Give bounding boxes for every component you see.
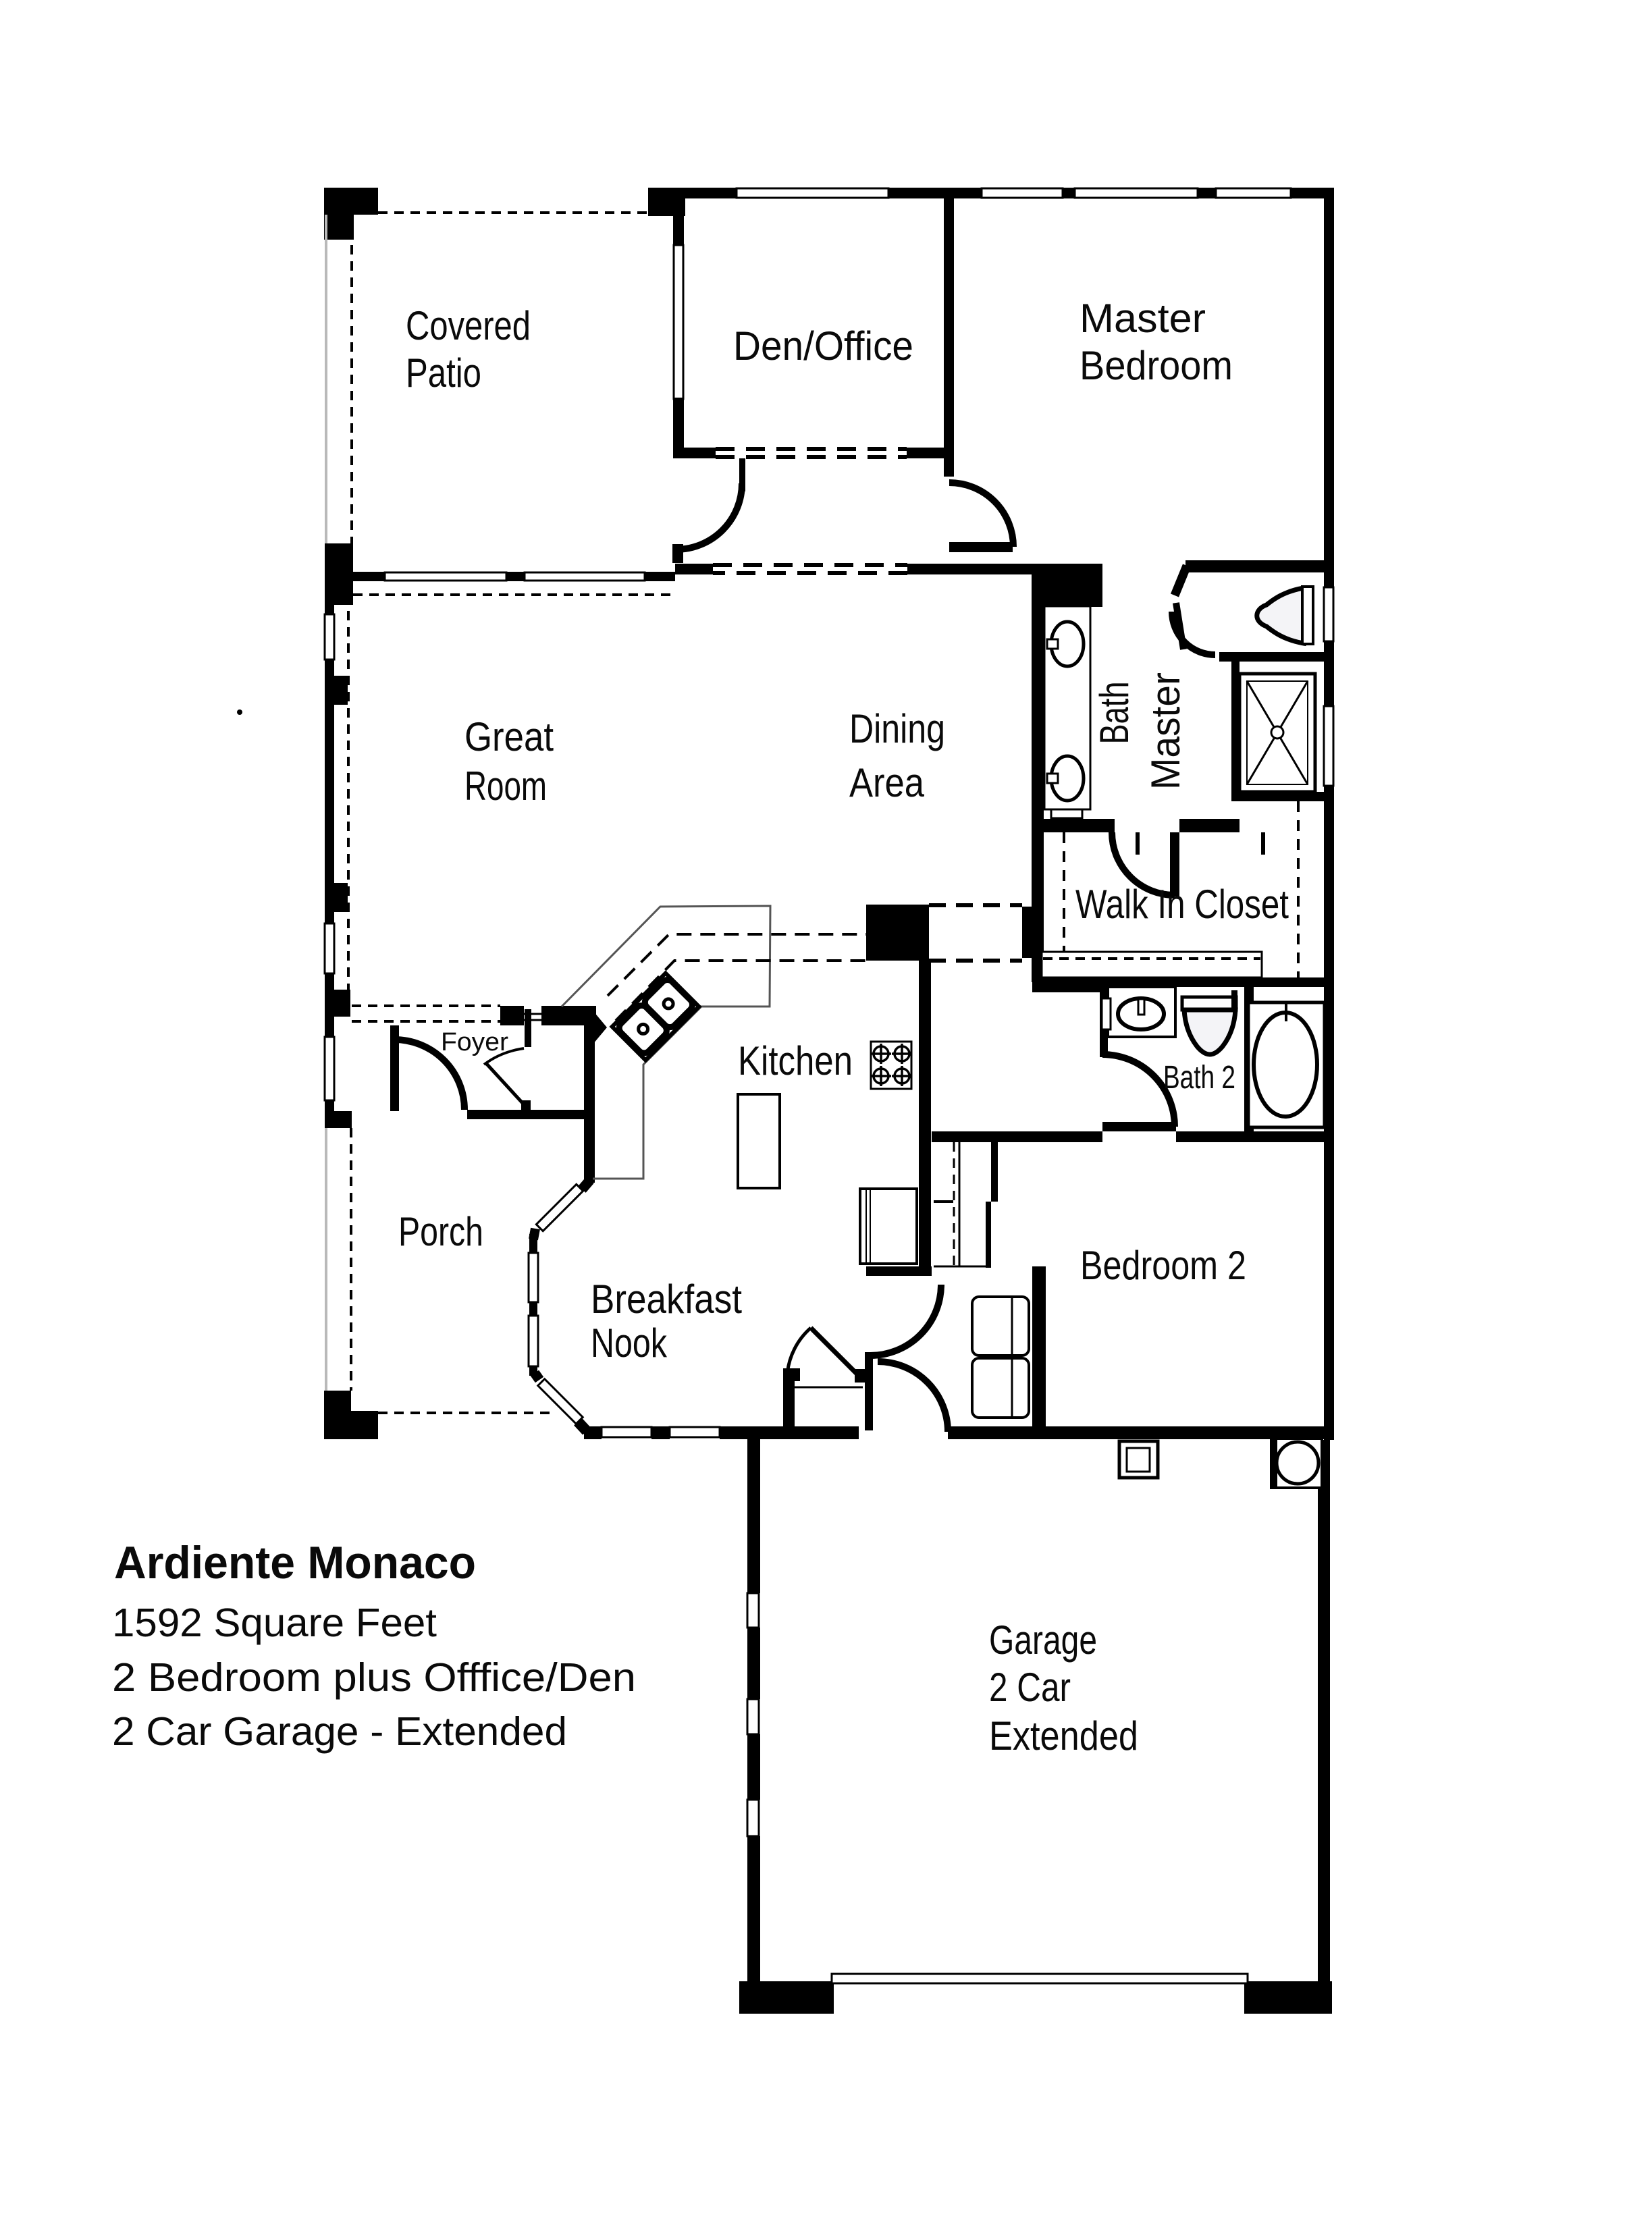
svg-text:Ardiente Monaco: Ardiente Monaco — [114, 1537, 476, 1588]
svg-text:Garage: Garage — [989, 1617, 1097, 1663]
svg-text:Walk In Closet: Walk In Closet — [1075, 882, 1289, 927]
svg-text:Kitchen: Kitchen — [738, 1038, 853, 1083]
svg-text:Patio: Patio — [406, 350, 481, 396]
svg-text:Breakfast: Breakfast — [591, 1277, 742, 1322]
svg-text:Den/Office: Den/Office — [733, 323, 913, 369]
svg-text:Foyer: Foyer — [441, 1028, 508, 1056]
svg-text:Great: Great — [464, 714, 554, 759]
svg-text:Bedroom: Bedroom — [1080, 343, 1233, 388]
svg-text:Master: Master — [1143, 672, 1188, 790]
svg-text:2 Bedroom plus Offfice/Den: 2 Bedroom plus Offfice/Den — [112, 1655, 636, 1700]
svg-text:Covered: Covered — [406, 303, 531, 348]
svg-text:Dining: Dining — [849, 706, 945, 751]
svg-text:Nook: Nook — [591, 1320, 668, 1366]
svg-text:Area: Area — [849, 760, 925, 805]
svg-text:2 Car: 2 Car — [989, 1665, 1071, 1710]
svg-text:2 Car Garage - Extended: 2 Car Garage - Extended — [112, 1709, 567, 1754]
svg-text:Room: Room — [464, 763, 547, 809]
svg-text:Bedroom 2: Bedroom 2 — [1080, 1243, 1246, 1288]
svg-text:Bath 2: Bath 2 — [1163, 1060, 1235, 1096]
svg-text:Porch: Porch — [398, 1209, 483, 1254]
svg-text:1592 Square Feet: 1592 Square Feet — [112, 1601, 437, 1645]
svg-text:Extended: Extended — [989, 1713, 1138, 1759]
svg-text:Master: Master — [1080, 296, 1206, 341]
svg-text:Bath: Bath — [1092, 682, 1137, 745]
